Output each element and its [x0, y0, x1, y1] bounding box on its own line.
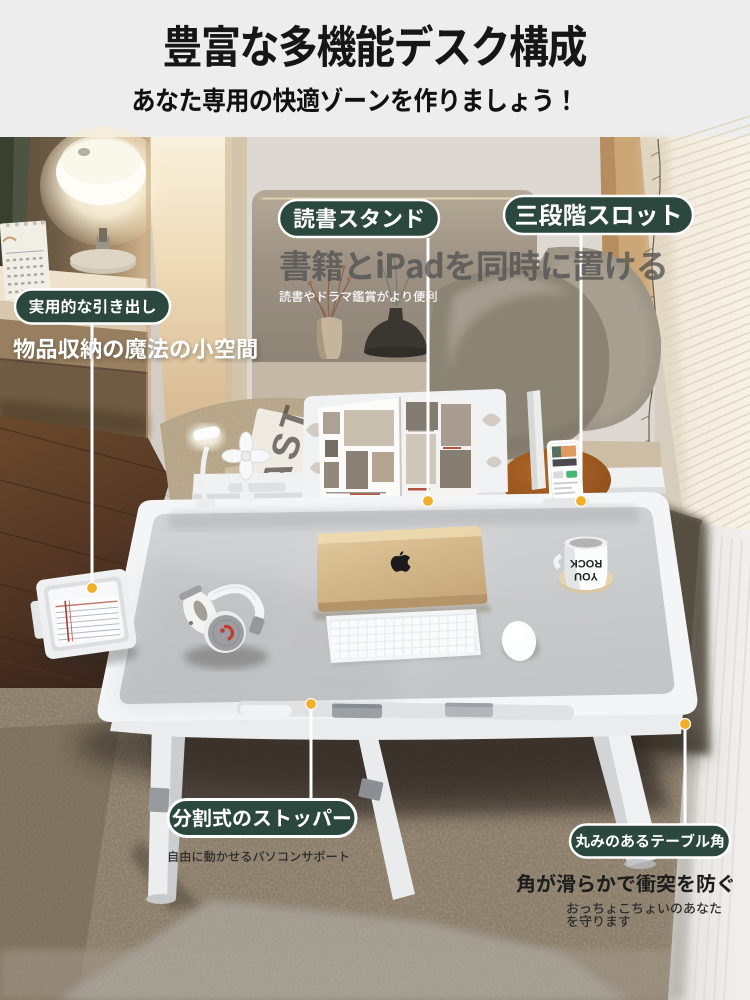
svg-text:YOU: YOU — [574, 570, 598, 582]
svg-text:ROCK: ROCK — [570, 557, 602, 569]
